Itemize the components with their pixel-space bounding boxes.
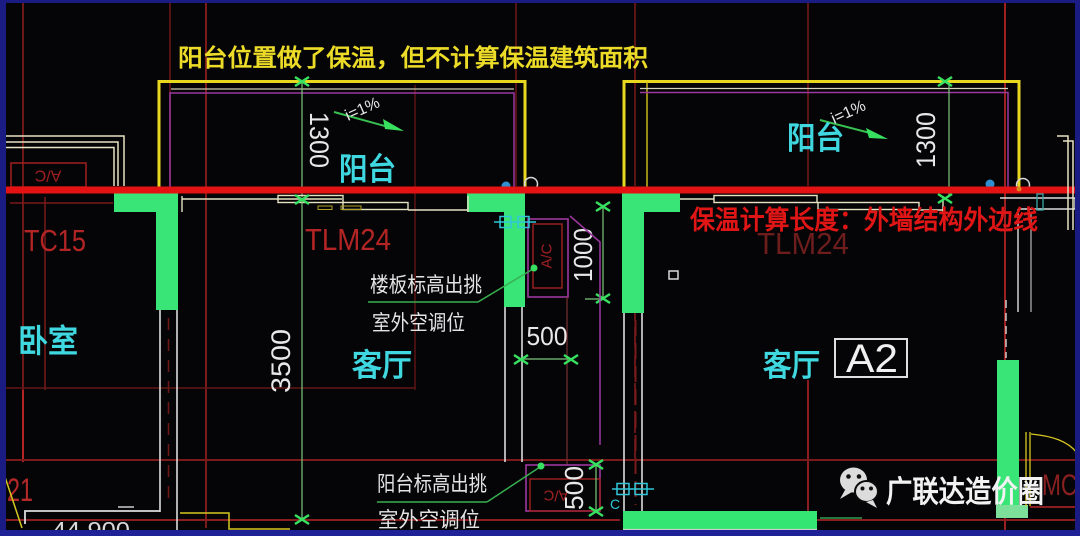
svg-text:MC1: MC1 (1042, 469, 1080, 502)
svg-text:阳台位置做了保温，但不计算保温建筑面积: 阳台位置做了保温，但不计算保温建筑面积 (178, 44, 648, 72)
svg-text:室外空调位: 室外空调位 (372, 312, 465, 335)
svg-text:500: 500 (559, 466, 589, 510)
svg-text:TLM24: TLM24 (305, 222, 391, 257)
svg-text:1300: 1300 (911, 112, 941, 168)
svg-text:阳台: 阳台 (787, 121, 844, 156)
svg-text:阳台标高出挑: 阳台标高出挑 (377, 473, 487, 496)
svg-text:C: C (610, 496, 620, 512)
svg-text:TC15: TC15 (24, 223, 86, 258)
svg-text:阳台: 阳台 (339, 152, 396, 187)
svg-text:室外空调位: 室外空调位 (378, 509, 480, 532)
svg-text:A/C: A/C (539, 243, 556, 268)
svg-text:500: 500 (527, 321, 568, 351)
svg-text:A/C: A/C (35, 167, 62, 184)
svg-text:广联达造价圈: 广联达造价圈 (886, 476, 1044, 509)
svg-text:21: 21 (7, 472, 33, 508)
svg-text:楼板标高出挑: 楼板标高出挑 (370, 274, 482, 297)
svg-text:卧室: 卧室 (18, 323, 78, 359)
svg-text:3500: 3500 (266, 329, 296, 393)
svg-text:1300: 1300 (304, 112, 334, 168)
svg-text:客厅: 客厅 (352, 348, 412, 383)
svg-text:A2: A2 (846, 337, 898, 381)
svg-text:保温计算长度：外墙结构外边线: 保温计算长度：外墙结构外边线 (689, 205, 1038, 235)
svg-text:客厅: 客厅 (763, 348, 820, 383)
